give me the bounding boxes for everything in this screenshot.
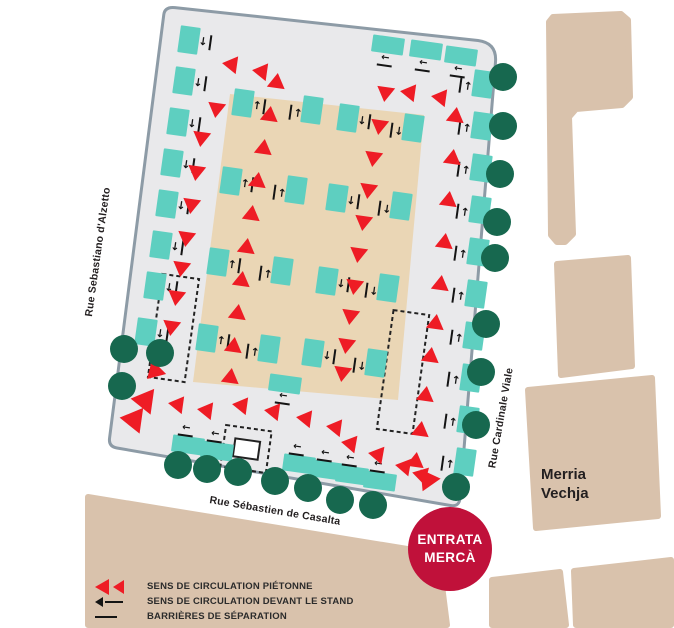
down-arrow-icon: ↓ <box>346 195 357 207</box>
market-stand <box>336 103 360 133</box>
building-label-line2: Vechja <box>541 485 589 504</box>
stand-direction-icon: ↑ <box>258 266 273 283</box>
barrier-circle <box>261 467 289 495</box>
up-arrow-icon: ↑ <box>451 374 462 386</box>
barrier-circle <box>489 63 517 91</box>
pedestrian-flow-arrow <box>416 382 436 402</box>
pedestrian-flow-arrow <box>218 54 238 74</box>
market-stand <box>195 323 219 353</box>
market-stand <box>206 247 230 277</box>
market-stand <box>172 66 196 96</box>
down-arrow-icon: ↓ <box>357 360 368 372</box>
pedestrian-flow-arrow <box>443 145 463 165</box>
market-stand <box>270 256 294 286</box>
market-stand <box>160 148 184 178</box>
pedestrian-flow-arrow <box>232 267 252 287</box>
pedestrian-flow-arrow <box>166 290 186 310</box>
barrier-circle <box>326 486 354 514</box>
stand-direction-icon: ↑ <box>272 185 287 202</box>
left-arrow-icon: ← <box>292 442 302 453</box>
pedestrian-flow-arrow <box>267 69 287 89</box>
down-arrow-icon: ↓ <box>198 36 209 48</box>
pedestrian-flow-arrow <box>181 198 201 218</box>
stand-direction-icon: ↓ <box>364 283 379 300</box>
stand-direction-icon: ← <box>207 429 224 444</box>
pedestrian-flow-arrow <box>375 86 395 106</box>
left-arrow-icon: ← <box>418 58 428 69</box>
up-arrow-icon: ↑ <box>263 268 274 280</box>
pedestrian-flow-arrow <box>260 102 280 122</box>
stand-direction-icon: ↓ <box>197 34 212 51</box>
pedestrian-flow-arrow <box>411 417 431 437</box>
barrier-circle <box>442 473 470 501</box>
pedestrian-flow-arrow <box>364 444 385 465</box>
market-stand <box>364 348 388 378</box>
down-arrow-icon: ↓ <box>382 203 393 215</box>
stand-direction-icon: ↓ <box>352 358 367 375</box>
market-map: ↓↓↓↓↓↓↓↓←←←↑↑↑↑↑↑↑↑↑↑←←←←←←↑↑↑↑↑↑↑↑↓↓↓↓↓… <box>0 0 674 628</box>
pedestrian-flow-arrow <box>221 364 241 384</box>
pedestrian-flow-arrow <box>431 271 451 291</box>
pedestrian-flow-arrow <box>337 433 358 454</box>
legend-label: BARRIÈRES DE SÉPARATION <box>147 611 287 622</box>
stand-direction-icon: ↑ <box>446 372 461 389</box>
down-arrow-icon: ↓ <box>187 118 198 130</box>
market-stand <box>143 271 167 301</box>
down-arrow-icon: ↓ <box>322 350 333 362</box>
up-arrow-icon: ↑ <box>456 290 467 302</box>
down-arrow-icon: ↓ <box>394 125 405 137</box>
legend-label: SENS DE CIRCULATION DEVANT LE STAND <box>147 596 354 607</box>
up-arrow-icon: ↑ <box>462 122 473 134</box>
pedestrian-flow-arrow <box>336 338 356 358</box>
pedestrian-flow-arrow <box>292 408 312 428</box>
stand-direction-icon: ↑ <box>288 105 303 122</box>
stand-direction-icon: ↓ <box>377 201 392 218</box>
separation-bar-icon <box>377 63 392 67</box>
legend-row-pedestrian-flow: SENS DE CIRCULATION PIÉTONNE <box>95 579 354 594</box>
black-arrow-icon <box>95 597 147 607</box>
entrance-label-line2: MERCÀ <box>424 549 476 567</box>
pedestrian-flow-arrow <box>161 320 181 340</box>
stand-direction-icon: ↓ <box>186 116 201 133</box>
barrier-circle <box>483 208 511 236</box>
stand-direction-icon: ↑ <box>440 456 455 473</box>
barrier-circle <box>489 112 517 140</box>
map-items-layer: ↓↓↓↓↓↓↓↓←←←↑↑↑↑↑↑↑↑↑↑←←←←←←↑↑↑↑↑↑↑↑↓↓↓↓↓… <box>0 0 674 628</box>
pedestrian-flow-arrow <box>363 151 383 171</box>
market-stand <box>389 191 413 221</box>
stand-direction-icon: ← <box>289 442 306 457</box>
pedestrian-flow-arrow <box>260 401 280 421</box>
stand-direction-icon: ↑ <box>245 344 260 361</box>
left-arrow-icon: ← <box>453 64 463 75</box>
barrier-circle <box>481 244 509 272</box>
market-stand <box>301 338 325 368</box>
red-triangles-icon <box>95 579 147 595</box>
down-arrow-icon: ↓ <box>369 285 380 297</box>
pedestrian-flow-arrow <box>224 333 244 353</box>
market-stand <box>376 273 400 303</box>
left-arrow-icon: ← <box>345 453 355 464</box>
market-stand <box>401 113 425 143</box>
pedestrian-flow-arrow <box>164 394 184 414</box>
market-stand <box>325 183 349 213</box>
left-arrow-icon: ← <box>181 423 191 434</box>
barrier-circle <box>486 160 514 188</box>
stand-direction-icon: ← <box>342 453 359 468</box>
pedestrian-flow-arrow <box>176 231 196 251</box>
barrier-circle <box>110 335 138 363</box>
pedestrian-flow-arrow <box>421 343 441 363</box>
market-entrance-badge: ENTRATA MERCÀ <box>408 507 492 591</box>
pedestrian-flow-arrow <box>206 102 226 122</box>
pedestrian-flow-arrow <box>115 404 143 433</box>
pedestrian-flow-arrow <box>254 135 274 155</box>
market-stand <box>315 266 339 296</box>
pedestrian-flow-arrow <box>369 119 389 139</box>
stand-direction-icon: ← <box>450 64 467 79</box>
legend-row-stand-flow: SENS DE CIRCULATION DEVANT LE STAND <box>95 594 354 609</box>
pedestrian-flow-arrow <box>193 400 213 420</box>
building-label-line1: Merria <box>541 466 589 485</box>
barrier-circle <box>224 458 252 486</box>
up-arrow-icon: ↑ <box>458 248 469 260</box>
separation-bar-icon <box>198 117 202 132</box>
stand-direction-icon: ← <box>377 53 394 68</box>
down-arrow-icon: ↓ <box>193 77 204 89</box>
barrier-circle <box>472 310 500 338</box>
up-arrow-icon: ↑ <box>463 80 474 92</box>
up-arrow-icon: ↑ <box>445 458 456 470</box>
market-stand <box>464 279 488 309</box>
up-arrow-icon: ↑ <box>277 187 288 199</box>
pedestrian-flow-arrow <box>228 300 248 320</box>
barrier-circle <box>359 491 387 519</box>
pedestrian-flow-arrow <box>353 215 373 235</box>
market-stand <box>155 189 179 219</box>
left-arrow-icon: ← <box>380 53 390 64</box>
up-arrow-icon: ↑ <box>460 206 471 218</box>
pedestrian-flow-arrow <box>358 183 378 203</box>
market-stand <box>219 166 243 196</box>
map-legend: SENS DE CIRCULATION PIÉTONNE SENS DE CIR… <box>95 579 354 624</box>
market-stand <box>257 334 281 364</box>
market-stand <box>149 230 173 260</box>
legend-row-barriers: BARRIÈRES DE SÉPARATION <box>95 609 354 624</box>
pedestrian-flow-arrow <box>396 82 416 102</box>
black-line-icon <box>95 616 147 618</box>
pedestrian-flow-arrow <box>191 131 211 151</box>
up-arrow-icon: ↑ <box>454 332 465 344</box>
left-arrow-icon: ← <box>278 391 288 402</box>
market-stand <box>177 25 201 55</box>
stand-direction-icon: ← <box>415 58 432 73</box>
pedestrian-flow-arrow <box>439 187 459 207</box>
up-arrow-icon: ↑ <box>448 416 459 428</box>
up-arrow-icon: ↑ <box>250 346 261 358</box>
barrier-circle <box>146 339 174 367</box>
pedestrian-flow-arrow <box>426 310 446 330</box>
barrier-circle <box>462 411 490 439</box>
pedestrian-flow-arrow <box>344 279 364 299</box>
pedestrian-flow-arrow <box>348 247 368 267</box>
stand-direction-icon: ↑ <box>453 246 468 263</box>
legend-label: SENS DE CIRCULATION PIÉTONNE <box>147 581 313 592</box>
entrance-label-line1: ENTRATA <box>417 531 482 549</box>
stand-direction-icon: ↑ <box>458 78 473 95</box>
pedestrian-flow-arrow <box>248 168 268 188</box>
barrier-circle <box>193 455 221 483</box>
market-stand <box>300 95 324 125</box>
pedestrian-flow-arrow <box>406 448 426 468</box>
stand-direction-icon: ← <box>178 423 195 438</box>
stand-direction-icon: ↑ <box>451 288 466 305</box>
market-stand <box>231 88 255 118</box>
stand-direction-icon: ↑ <box>449 330 464 347</box>
barrier-circle <box>164 451 192 479</box>
market-stand <box>166 107 190 137</box>
separation-bar-icon <box>204 76 208 91</box>
stand-direction-icon: ↑ <box>443 414 458 431</box>
left-arrow-icon: ← <box>320 448 330 459</box>
pedestrian-flow-arrow <box>446 103 466 123</box>
separation-bar-icon <box>209 35 213 50</box>
barrier-circle <box>467 358 495 386</box>
stand-direction-icon: ↓ <box>192 75 207 92</box>
barrier-circle <box>294 474 322 502</box>
down-arrow-icon: ↓ <box>357 115 368 127</box>
pedestrian-flow-arrow <box>171 261 191 281</box>
building-label-merria-vechja: Merria Vechja <box>541 466 589 504</box>
pedestrian-flow-arrow <box>435 229 455 249</box>
pedestrian-flow-arrow <box>427 87 447 107</box>
market-stand <box>284 175 308 205</box>
pedestrian-flow-arrow <box>340 309 360 329</box>
pedestrian-flow-arrow <box>228 395 248 415</box>
stand-direction-icon: ← <box>317 448 334 463</box>
up-arrow-icon: ↑ <box>461 164 472 176</box>
pedestrian-flow-arrow <box>248 61 268 81</box>
stand-direction-icon: ↑ <box>455 204 470 221</box>
pedestrian-flow-arrow <box>242 201 262 221</box>
stand-direction-icon: ↓ <box>389 123 404 140</box>
barrier-circle <box>108 372 136 400</box>
pedestrian-flow-arrow <box>186 165 206 185</box>
pedestrian-flow-arrow <box>237 234 257 254</box>
separation-bar-icon <box>415 68 430 72</box>
stand-direction-icon: ↓ <box>321 348 336 365</box>
left-arrow-icon: ← <box>210 429 220 440</box>
up-arrow-icon: ↑ <box>293 107 304 119</box>
pedestrian-flow-arrow <box>332 366 352 386</box>
